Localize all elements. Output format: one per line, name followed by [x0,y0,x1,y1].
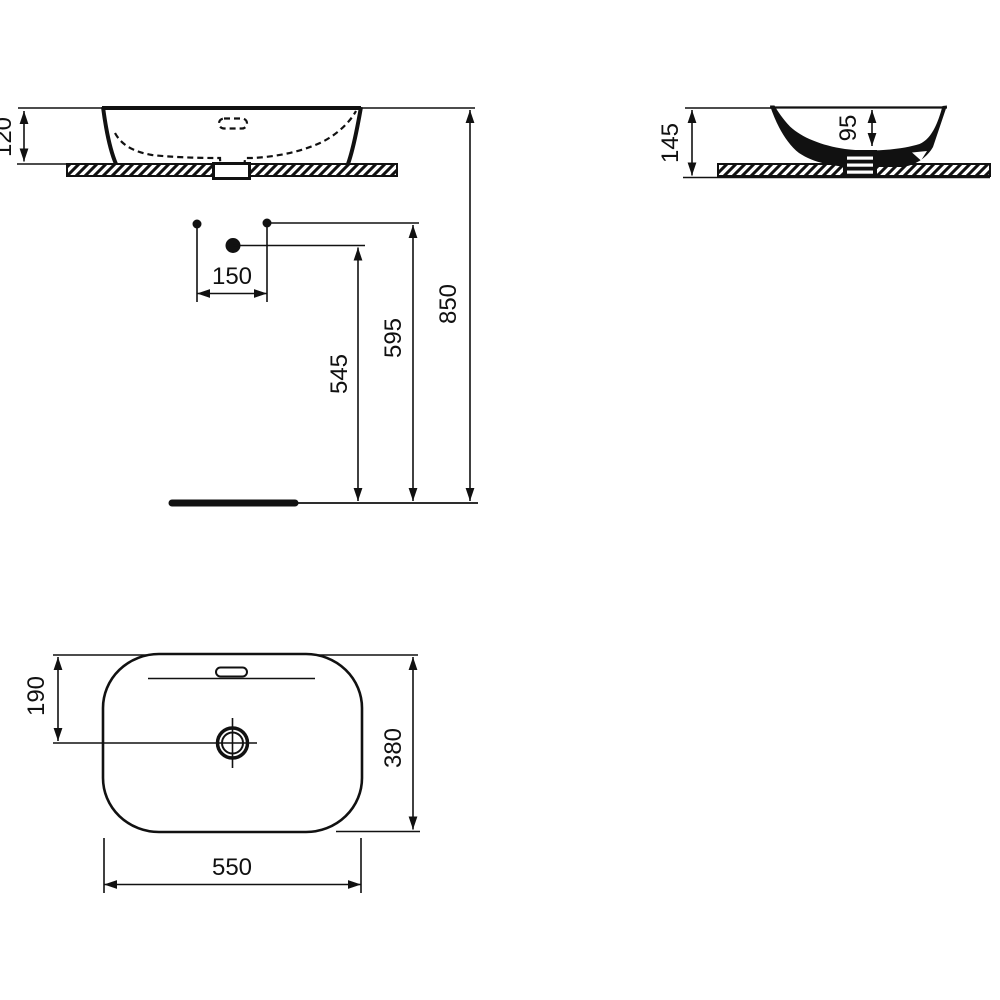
plan-view: 190 380 550 [23,654,420,893]
dimension-120: 120 [0,111,24,162]
technical-drawing-canvas: 120 145 95 150 [0,0,1000,1000]
basin-left-wall [103,107,116,164]
countertop-section-right [250,164,397,176]
dimension-150-label: 150 [212,263,252,290]
dimension-145: 145 [657,110,692,176]
front-view: 120 [0,107,475,179]
dimension-120-label: 120 [0,117,17,157]
dimension-595-label: 595 [380,318,407,358]
dimension-150: 150 [197,263,267,294]
drain-fitting-front [214,164,250,179]
drain-thread-line [847,164,873,167]
dimension-545: 545 [326,248,358,502]
drain-thread-line [847,171,873,174]
hidden-bowl-profile [115,111,356,170]
dimension-380-label: 380 [380,728,407,768]
dimension-190-label: 190 [23,676,50,716]
countertop-section-left [67,164,213,176]
washbasin-drawing: 120 145 95 150 [0,0,1000,1000]
side-view: 145 95 [657,106,990,179]
hidden-overflow-slot [219,119,247,129]
dimension-190: 190 [23,657,58,741]
dimension-545-label: 545 [326,354,353,394]
dimension-595: 595 [380,225,413,501]
dimension-850-label: 850 [435,284,462,324]
basin-right-wall [348,107,361,164]
dimension-850: 850 [435,110,470,501]
dimension-550-label: 550 [212,854,252,881]
dimension-95: 95 [835,110,872,146]
dimension-550: 550 [104,838,361,893]
drain-thread-line [847,157,873,160]
overflow-slot-plan [216,668,247,677]
dimension-95-label: 95 [835,115,862,142]
dimension-145-label: 145 [657,123,684,163]
